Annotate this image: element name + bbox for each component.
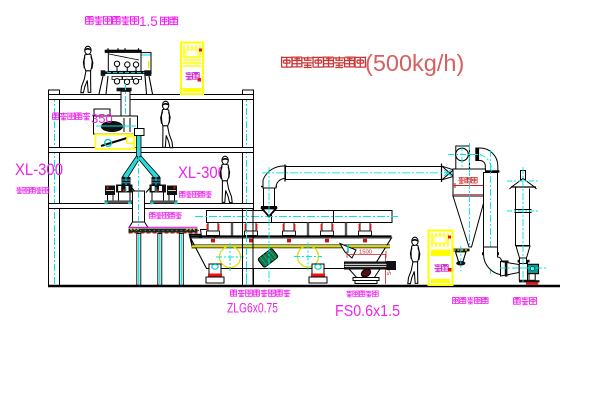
svg-text:ZLG6x0.75: ZLG6x0.75 bbox=[227, 301, 278, 316]
svg-text:(500kg/h): (500kg/h) bbox=[365, 50, 464, 76]
svg-text:XL-300: XL-300 bbox=[178, 164, 226, 182]
svg-text:350: 350 bbox=[91, 111, 113, 126]
svg-text:1.5: 1.5 bbox=[139, 14, 158, 29]
svg-text:XL-300: XL-300 bbox=[15, 161, 63, 179]
svg-text:FS0.6x1.5: FS0.6x1.5 bbox=[335, 303, 400, 320]
